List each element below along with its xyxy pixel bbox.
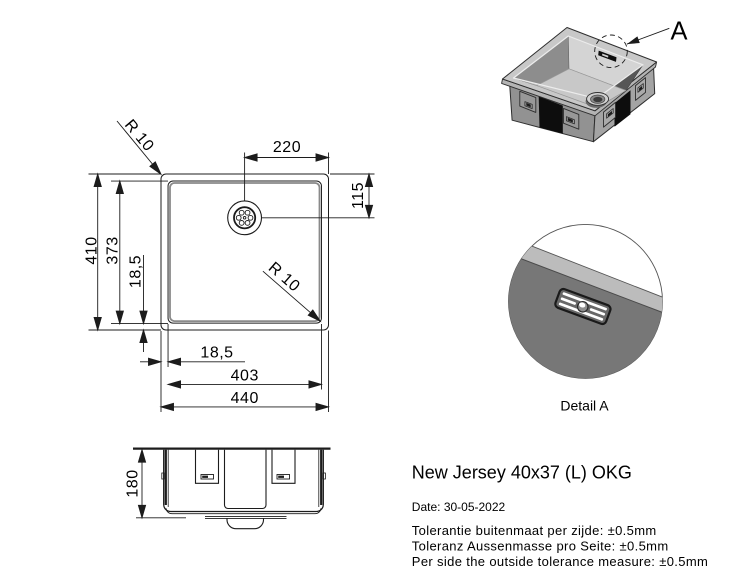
svg-text:220: 220: [273, 139, 301, 156]
svg-text:A: A: [671, 18, 688, 46]
svg-text:Toleranz Aussenmasse pro Seite: Toleranz Aussenmasse pro Seite: ±0.5mm: [412, 539, 669, 554]
svg-text:18,5: 18,5: [128, 255, 145, 288]
svg-text:18,5: 18,5: [200, 344, 233, 361]
svg-text:115: 115: [350, 182, 367, 209]
svg-text:373: 373: [105, 236, 122, 264]
svg-text:180: 180: [125, 469, 142, 497]
svg-text:Per side the outside tolerance: Per side the outside tolerance measure: …: [412, 554, 708, 569]
svg-text:410: 410: [84, 236, 101, 264]
svg-text:Date: 30-05-2022: Date: 30-05-2022: [412, 500, 506, 514]
svg-text:Detail A: Detail A: [560, 398, 609, 414]
svg-text:403: 403: [231, 368, 259, 385]
svg-text:440: 440: [231, 390, 259, 407]
svg-text:Tolerantie buitenmaat per zijd: Tolerantie buitenmaat per zijde: ±0.5mm: [412, 523, 657, 538]
svg-text:New Jersey 40x37 (L) OKG: New Jersey 40x37 (L) OKG: [412, 463, 632, 483]
